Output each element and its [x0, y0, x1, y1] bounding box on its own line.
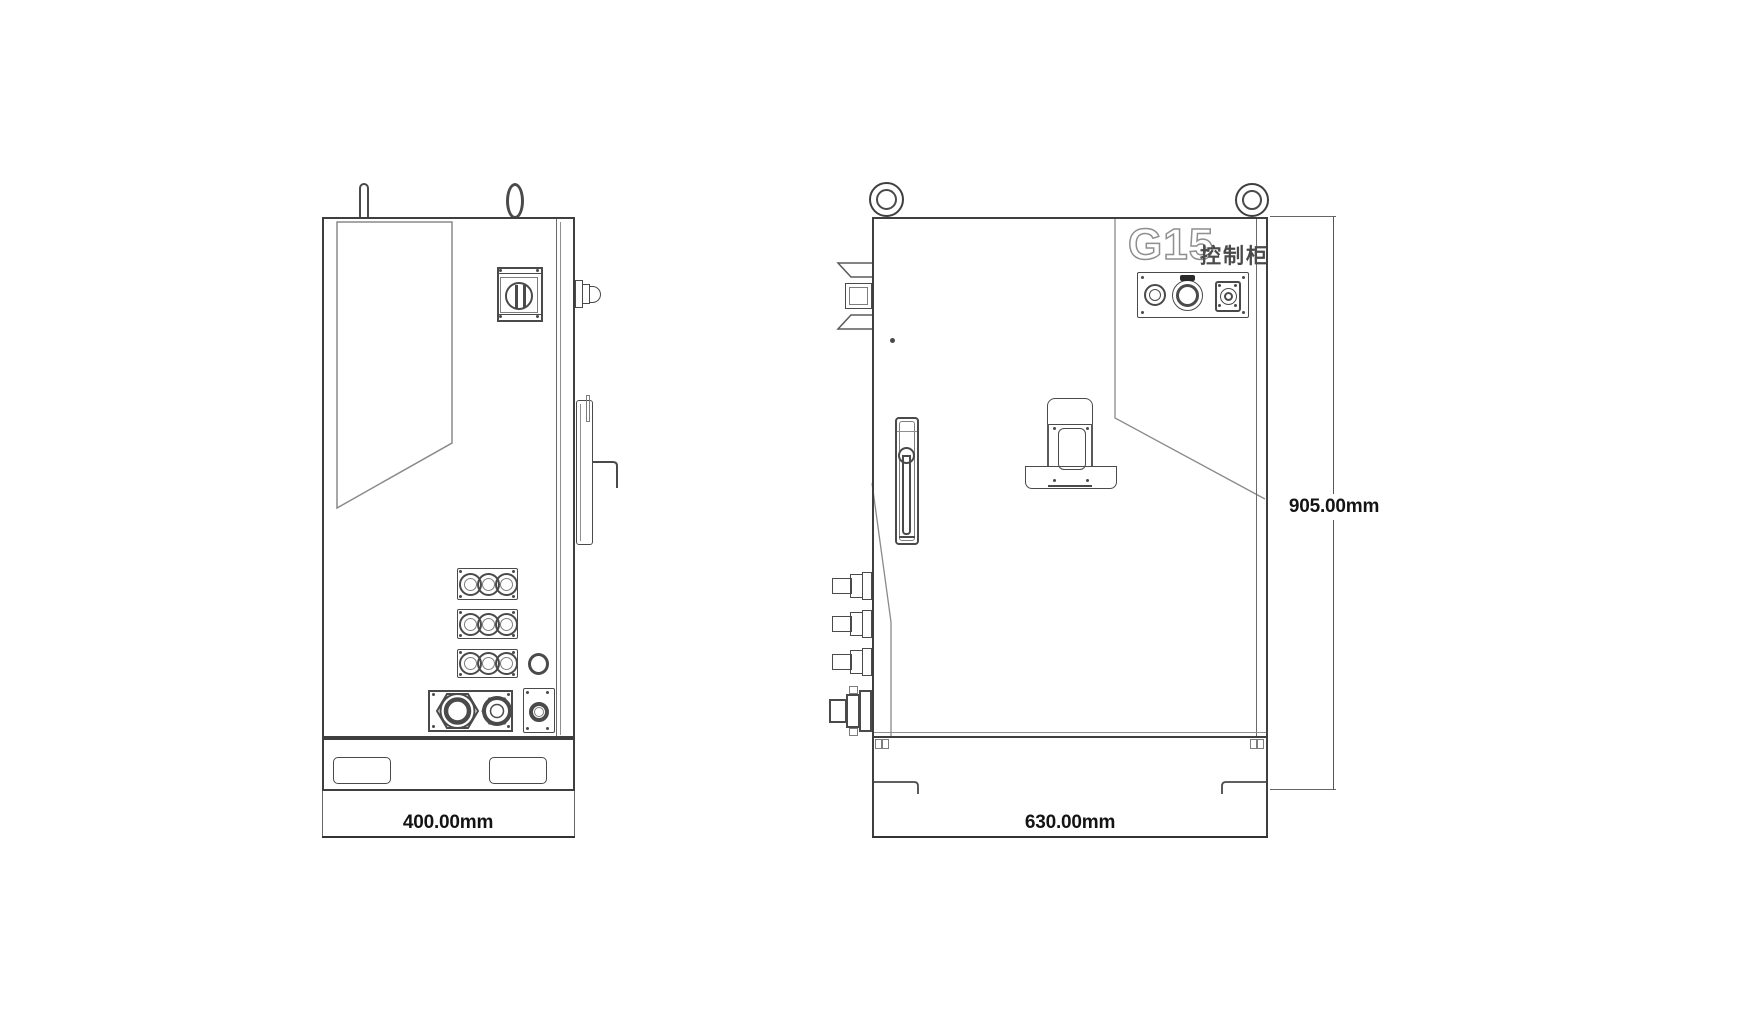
- screw-dot: [432, 693, 435, 696]
- screw-dot: [1234, 284, 1237, 287]
- indicator-button-inner: [1149, 289, 1161, 301]
- screw-dot: [499, 315, 502, 318]
- screw-dot: [512, 570, 515, 573]
- lifting-eye-inner: [1242, 190, 1262, 210]
- dim-extension-line: [574, 791, 575, 837]
- screw-dot: [1053, 427, 1056, 430]
- screw-dot: [459, 673, 462, 676]
- screw-dot: [1086, 479, 1089, 482]
- dim-extension-line: [1270, 216, 1336, 217]
- round-connector-single: [528, 653, 549, 675]
- cable-gland-flange: [862, 572, 872, 600]
- screw-dot: [546, 691, 549, 694]
- side-handle-inner-line: [580, 404, 581, 541]
- screw-dot: [526, 691, 529, 694]
- connector-socket-inner: [464, 578, 477, 591]
- screw-dot: [459, 595, 462, 598]
- base-corner-tab: [1250, 739, 1257, 749]
- connector-socket-inner: [500, 657, 513, 670]
- rotary-switch-bottom-bar: [499, 314, 541, 315]
- dim-line-width: [872, 836, 1268, 838]
- t-bracket-bottom-line: [1048, 485, 1092, 487]
- screw-dot: [459, 651, 462, 654]
- screw-dot: [432, 725, 435, 728]
- front-height-dimension-label: 905.00mm: [1272, 494, 1396, 520]
- base-foot-slot: [333, 757, 391, 784]
- base-side-line: [872, 738, 874, 837]
- cable-gland-pipe: [829, 699, 847, 723]
- cable-gland-flange: [859, 690, 872, 732]
- base-side-line: [1266, 738, 1268, 837]
- side-handle-pin: [586, 395, 590, 422]
- base-foot-hook-right: [1222, 782, 1267, 794]
- screw-dot: [459, 634, 462, 637]
- cable-gland-pipe: [832, 578, 852, 594]
- aviation-connector-core: [1224, 292, 1233, 301]
- dim-extension-line: [322, 791, 323, 837]
- screw-dot: [1242, 276, 1245, 279]
- base-foot-hook-left: [873, 782, 918, 794]
- front-side-bracket-inner: [849, 287, 868, 305]
- rotary-switch-top-bar: [499, 273, 541, 274]
- screw-dot: [512, 634, 515, 637]
- rotary-switch-knob: [505, 282, 533, 310]
- cable-gland-tab: [849, 686, 858, 694]
- screw-dot: [499, 269, 502, 272]
- door-edge-line: [1256, 219, 1257, 736]
- screw-dot: [1234, 304, 1237, 307]
- model-caption: 控制柜: [1200, 240, 1269, 270]
- rotary-switch-grip-line: [523, 285, 526, 308]
- cable-gland-tab: [849, 728, 858, 736]
- t-bracket-side: [1091, 424, 1093, 467]
- screw-dot: [459, 611, 462, 614]
- screw-dot: [512, 611, 515, 614]
- lifting-eye-icon: [506, 183, 524, 219]
- cable-gland-nut: [846, 694, 860, 728]
- side-handle-hook: [593, 462, 617, 488]
- screw-dot: [512, 595, 515, 598]
- estop-button: [1176, 284, 1199, 307]
- t-bracket-cap: [1047, 398, 1093, 425]
- screw-dot: [1141, 311, 1144, 314]
- connector-socket-inner: [482, 618, 495, 631]
- base-corner-tab: [882, 739, 889, 749]
- screw-dot: [536, 315, 539, 318]
- connector-socket-inner: [482, 657, 495, 670]
- connector-socket-inner: [500, 618, 513, 631]
- connector-socket-inner: [482, 578, 495, 591]
- lifting-pin-icon: [359, 183, 369, 219]
- door-handle-top-line: [897, 431, 917, 432]
- square-plate-ring-inner: [534, 707, 544, 717]
- screw-dot: [1141, 276, 1144, 279]
- base-foot-slot: [489, 757, 547, 784]
- dim-line-width: [322, 836, 575, 838]
- cabinet-bottom-inner-line: [874, 732, 1266, 733]
- dim-extension-line: [1270, 789, 1336, 790]
- connector-socket-inner: [464, 618, 477, 631]
- cable-gland-pipe: [832, 654, 852, 670]
- door-handle-grip: [902, 455, 911, 535]
- base-corner-tab: [1257, 739, 1264, 749]
- gland-plate-large: [428, 690, 513, 732]
- technical-drawing-canvas: 400.00mm G15 控制柜: [0, 0, 1760, 1030]
- screw-dot: [507, 693, 510, 696]
- screw-dot: [526, 727, 529, 730]
- door-handle-bottom-line: [899, 536, 915, 538]
- screw-dot: [536, 269, 539, 272]
- door-edge-line: [556, 219, 557, 738]
- lifting-eye-inner: [876, 189, 897, 210]
- door-edge-line-2: [560, 222, 561, 735]
- front-width-dimension-label: 630.00mm: [1005, 812, 1135, 834]
- cable-gland-flange: [862, 610, 872, 638]
- screw-dot: [512, 673, 515, 676]
- screw-dot: [507, 725, 510, 728]
- face-rivet-dot: [890, 338, 895, 343]
- connector-socket-inner: [464, 657, 477, 670]
- rotary-switch-grip-line: [515, 285, 518, 308]
- screw-dot: [1218, 304, 1221, 307]
- cable-gland-pipe: [832, 616, 852, 632]
- t-bracket-side: [1047, 424, 1049, 467]
- screw-dot: [459, 570, 462, 573]
- t-bracket-window: [1058, 428, 1086, 470]
- screw-dot: [1218, 284, 1221, 287]
- screw-dot: [546, 727, 549, 730]
- tiny-label-badge: [1180, 275, 1195, 281]
- base-corner-tab: [875, 739, 882, 749]
- screw-dot: [1242, 311, 1245, 314]
- screw-dot: [1086, 427, 1089, 430]
- side-width-dimension-label: 400.00mm: [383, 812, 513, 834]
- screw-dot: [512, 651, 515, 654]
- side-handle-plate: [576, 400, 593, 545]
- connector-socket-inner: [500, 578, 513, 591]
- screw-dot: [1053, 479, 1056, 482]
- cable-gland-flange: [862, 648, 872, 676]
